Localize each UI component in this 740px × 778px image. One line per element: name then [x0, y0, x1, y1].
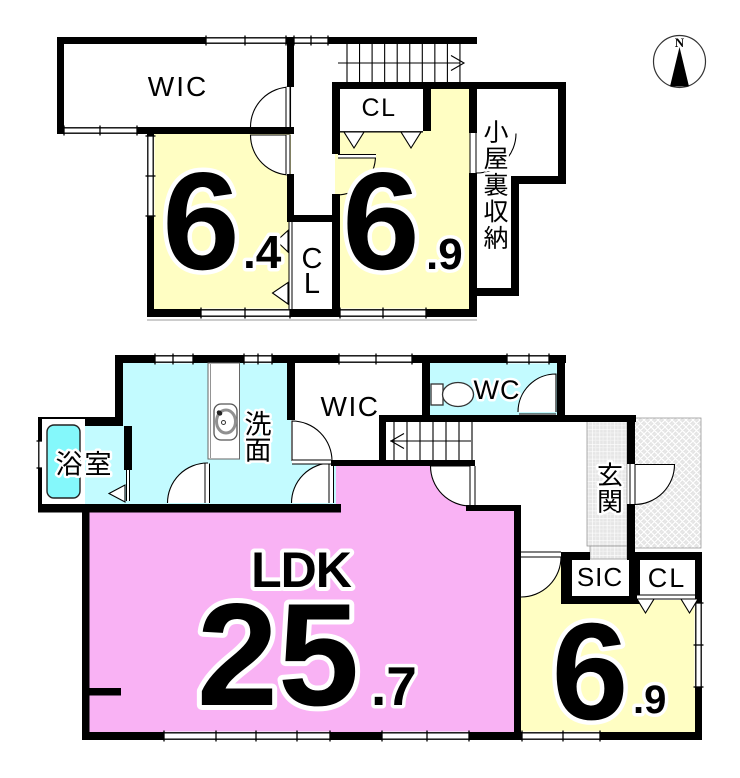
- svg-text:.7: .7: [371, 655, 417, 717]
- svg-text:WIC: WIC: [321, 391, 380, 422]
- svg-text:L: L: [304, 268, 320, 300]
- svg-text:.9: .9: [426, 230, 463, 279]
- svg-text:6: 6: [162, 144, 239, 299]
- svg-text:N: N: [675, 35, 685, 50]
- svg-text:25: 25: [197, 573, 359, 736]
- svg-text:WC: WC: [474, 375, 521, 405]
- svg-text:6: 6: [342, 144, 419, 299]
- svg-text:CL: CL: [648, 563, 687, 593]
- svg-text:SIC: SIC: [577, 562, 623, 592]
- svg-text:.4: .4: [243, 226, 282, 278]
- svg-text:.9: .9: [633, 678, 666, 722]
- svg-text:CL: CL: [362, 94, 397, 122]
- svg-text:WIC: WIC: [148, 71, 208, 102]
- svg-text:6: 6: [552, 595, 629, 749]
